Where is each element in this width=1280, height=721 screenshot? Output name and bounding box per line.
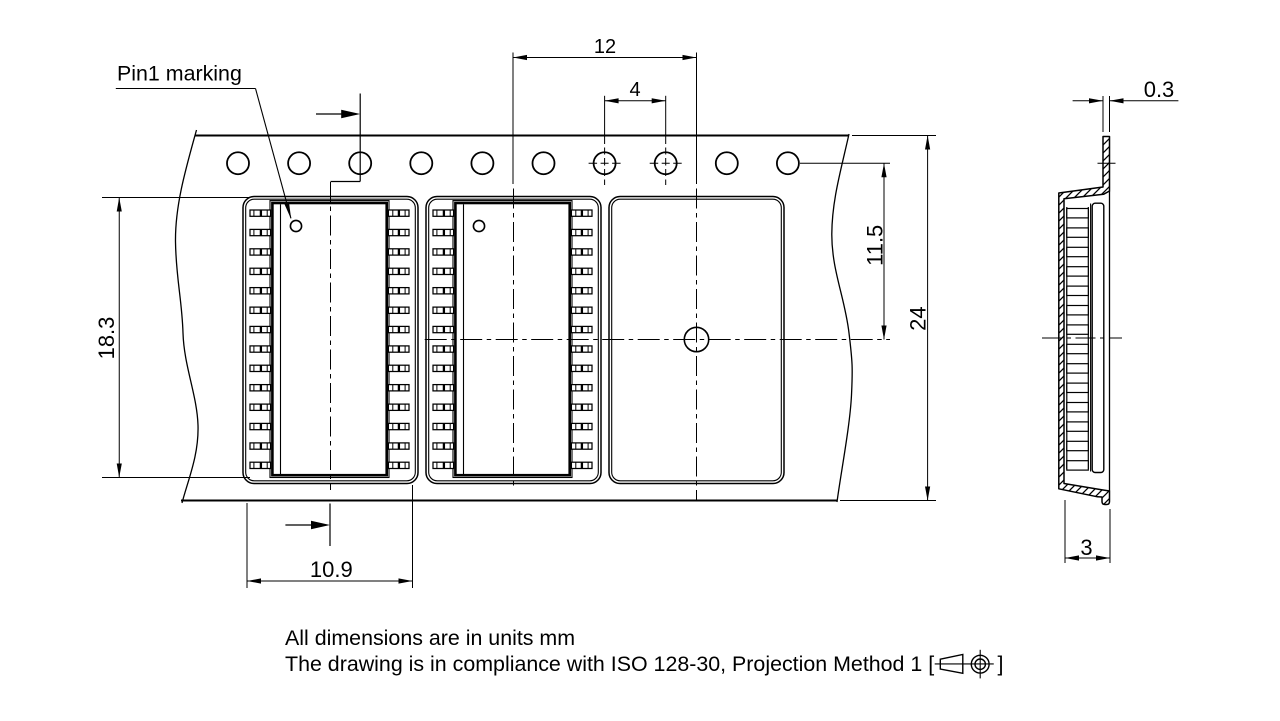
svg-text:4: 4 <box>629 79 640 101</box>
svg-text:18.3: 18.3 <box>94 317 119 360</box>
svg-text:3: 3 <box>1080 535 1092 560</box>
svg-text:0.3: 0.3 <box>1144 77 1175 102</box>
svg-text:]: ] <box>998 652 1004 676</box>
svg-text:Pin1 marking: Pin1 marking <box>117 61 242 85</box>
svg-text:12: 12 <box>594 36 616 58</box>
svg-text:11.5: 11.5 <box>863 225 888 266</box>
svg-text:24: 24 <box>906 306 931 330</box>
svg-text:The drawing is in compliance w: The drawing is in compliance with ISO 12… <box>285 652 934 676</box>
svg-text:10.9: 10.9 <box>310 557 353 582</box>
svg-text:All dimensions are in units mm: All dimensions are in units mm <box>285 626 575 650</box>
